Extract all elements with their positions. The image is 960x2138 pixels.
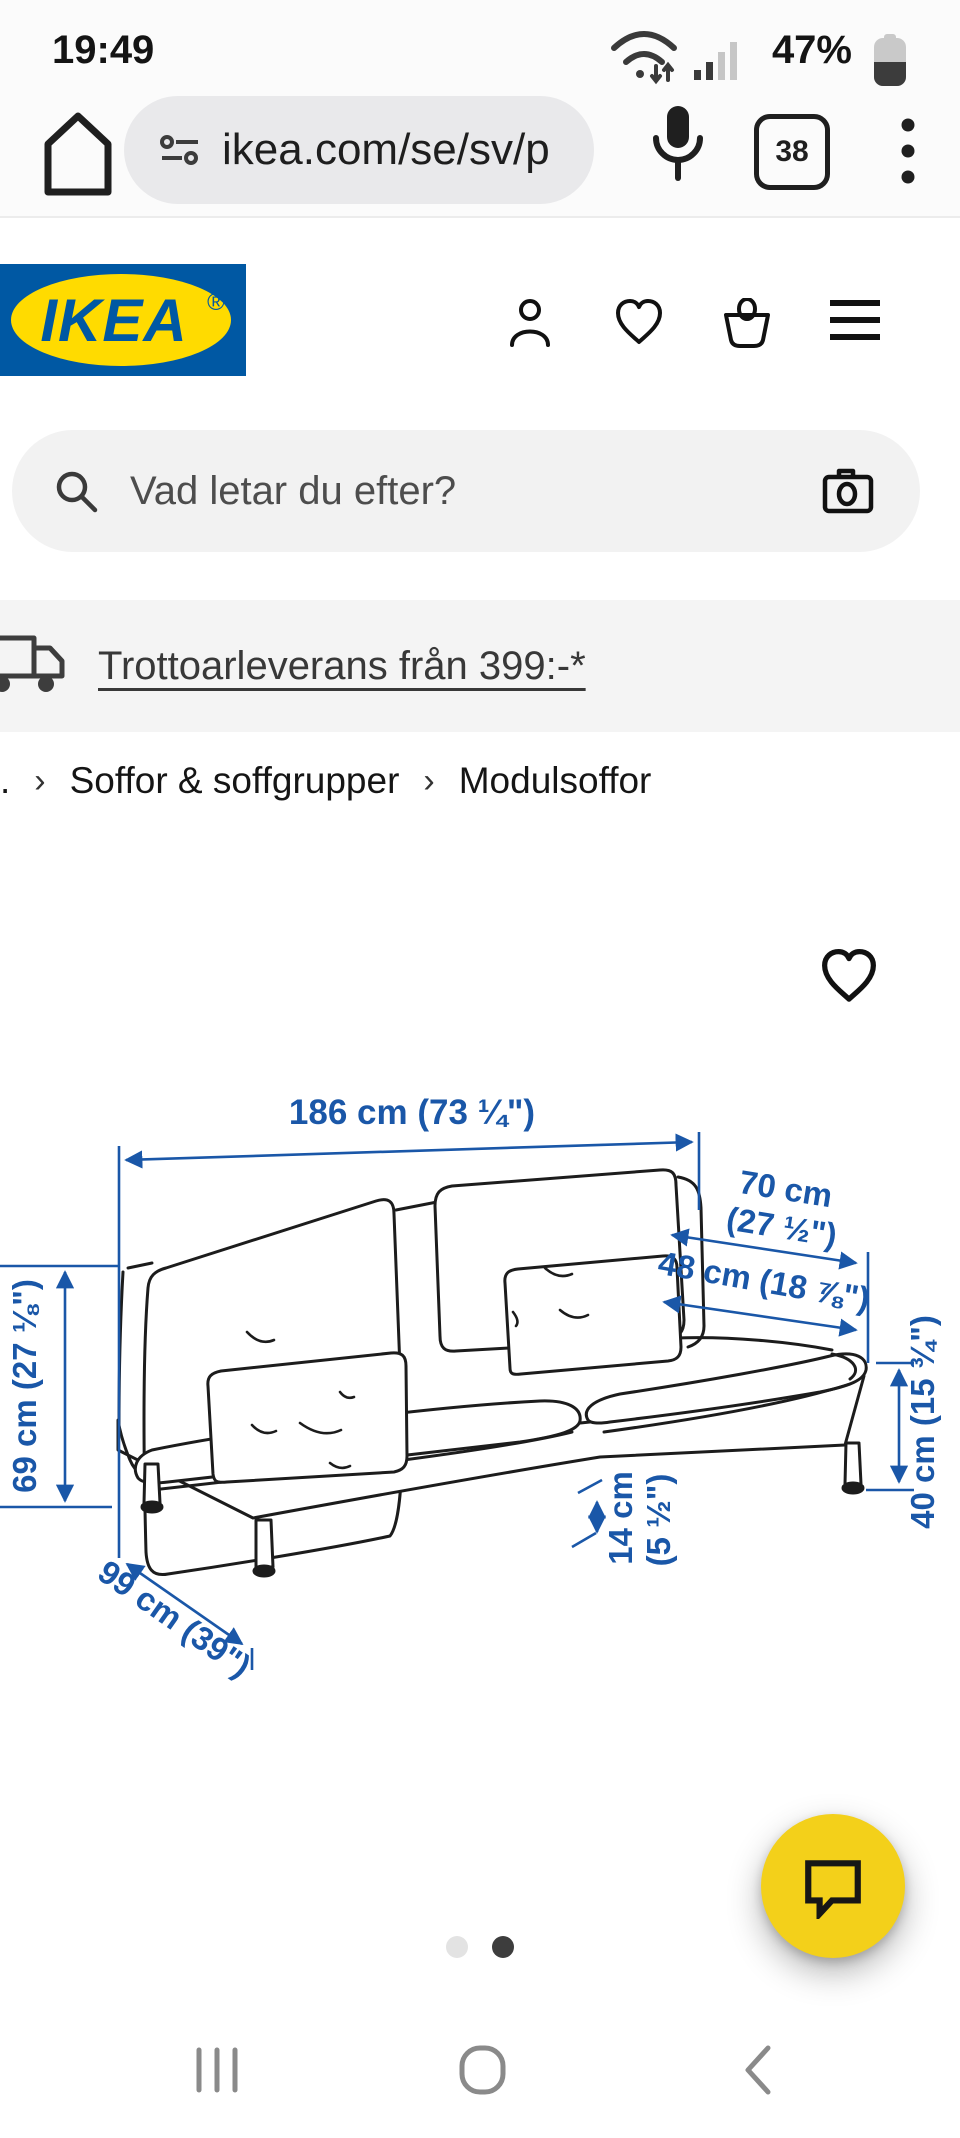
- android-nav-bar: [0, 2010, 960, 2133]
- dim-leg-clearance-label-line1: 14 cm: [602, 1471, 639, 1565]
- voice-search-button[interactable]: [648, 102, 708, 203]
- delivery-banner[interactable]: Trottoarleverans från 399:-*: [0, 600, 960, 732]
- status-time: 19:49: [52, 28, 154, 73]
- home-nav-icon[interactable]: [462, 2048, 503, 2092]
- url-bar[interactable]: ikea.com/se/sv/p: [124, 96, 594, 204]
- browser-home-button[interactable]: [36, 106, 120, 203]
- heart-icon: [618, 301, 660, 342]
- cart-button[interactable]: [722, 298, 772, 353]
- phone-top-chrome: 19:49 47%: [0, 0, 960, 218]
- dim-leg-clearance-label-line2: (5 ½"): [640, 1474, 677, 1567]
- breadcrumb-item-truncated[interactable]: .: [0, 760, 10, 802]
- breadcrumb-item-category[interactable]: Soffor & soffgrupper: [70, 760, 400, 802]
- status-icons: [610, 22, 920, 91]
- site-settings-icon: [162, 137, 198, 163]
- menu-button[interactable]: [830, 298, 880, 347]
- battery-percent: 47%: [772, 28, 852, 73]
- kebab-menu-icon: [902, 119, 915, 184]
- wifi-icon: [614, 34, 674, 81]
- tab-switcher-button[interactable]: 38: [754, 114, 830, 190]
- breadcrumb-separator: ›: [34, 762, 45, 801]
- basket-icon: [726, 299, 768, 346]
- wishlist-button[interactable]: [614, 298, 664, 351]
- breadcrumb-item-current[interactable]: Modulsoffor: [459, 760, 652, 802]
- carousel-dot[interactable]: [446, 1936, 468, 1958]
- search-icon: [59, 474, 95, 510]
- microphone-icon: [656, 106, 700, 178]
- person-icon: [512, 301, 548, 345]
- profile-button[interactable]: [506, 298, 554, 353]
- dim-width-label: 186 cm (73 ¼"): [289, 1093, 535, 1132]
- search-input[interactable]: Vad letar du efter?: [12, 430, 920, 552]
- camera-icon[interactable]: [825, 471, 871, 511]
- url-text: ikea.com/se/sv/p: [222, 125, 550, 175]
- ikea-logo[interactable]: IKEA ®: [0, 264, 246, 381]
- speech-bubble-icon: [808, 1863, 858, 1914]
- breadcrumb-separator: ›: [423, 762, 434, 801]
- tab-count: 38: [775, 135, 808, 169]
- search-placeholder: Vad letar du efter?: [130, 469, 822, 514]
- browser-menu-button[interactable]: [900, 116, 916, 191]
- logo-registered-mark: ®: [207, 289, 225, 316]
- back-icon[interactable]: [748, 2048, 768, 2092]
- breadcrumb: . › Soffor & soffgrupper › Modulsoffor: [0, 760, 960, 802]
- recents-icon[interactable]: [199, 2050, 235, 2090]
- delivery-link[interactable]: Trottoarleverans från 399:-*: [98, 644, 586, 689]
- house-icon: [48, 116, 108, 192]
- battery-icon: [874, 34, 906, 86]
- signal-icon: [694, 42, 737, 80]
- carousel-dot[interactable]: [492, 1936, 514, 1958]
- truck-icon: [0, 638, 62, 692]
- dim-seat-height-label: 40 cm (15 ¾"): [904, 1315, 941, 1529]
- logo-text: IKEA: [40, 287, 187, 354]
- chat-button[interactable]: [761, 1814, 905, 1958]
- dim-back-height-label: 69 cm (27 ⅛"): [6, 1279, 43, 1493]
- hamburger-icon: [830, 300, 880, 340]
